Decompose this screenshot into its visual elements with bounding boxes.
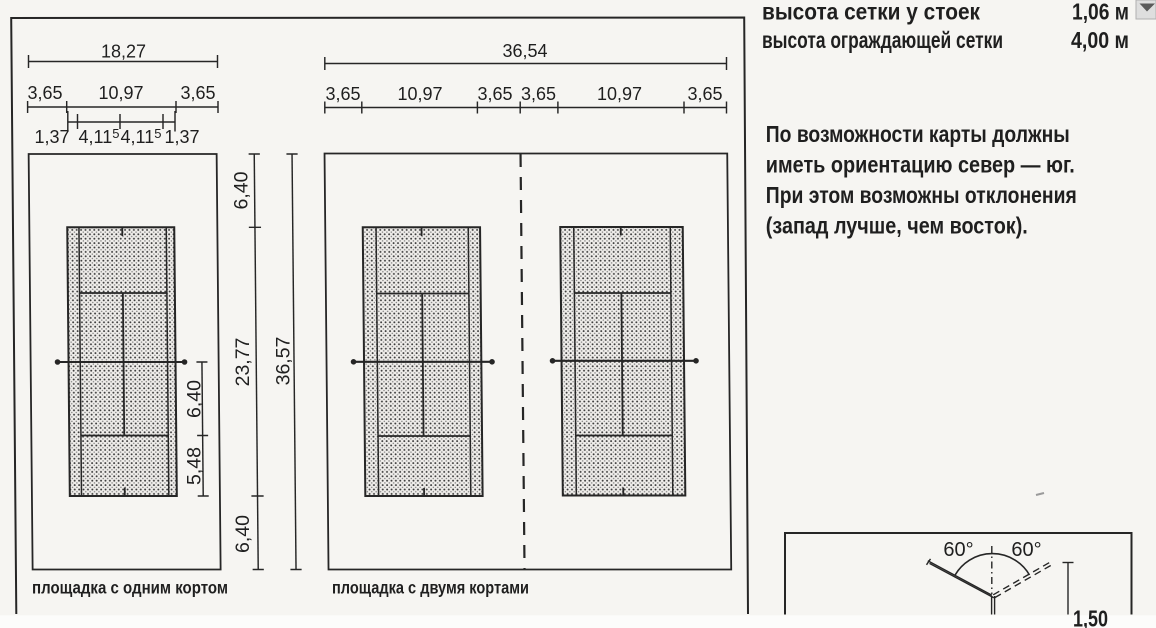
svg-text:высота сетки у стоек: высота сетки у стоек	[762, 0, 980, 25]
svg-text:18,27: 18,27	[101, 42, 146, 62]
svg-text:6,40: 6,40	[183, 380, 205, 418]
svg-text:6,40: 6,40	[231, 171, 253, 209]
svg-text:При этом возможны отклонения: При этом возможны отклонения	[766, 182, 1077, 208]
svg-text:По возможности карты должны: По возможности карты должны	[766, 121, 1070, 147]
svg-text:3,65: 3,65	[687, 84, 722, 104]
svg-text:23,77: 23,77	[232, 338, 254, 387]
svg-text:60°: 60°	[1011, 539, 1041, 561]
svg-text:10,97: 10,97	[98, 83, 143, 103]
svg-text:площадка с одним кортом: площадка с одним кортом	[32, 578, 228, 598]
svg-text:высота ограждающей сетки: высота ограждающей сетки	[762, 27, 1003, 53]
svg-text:10,97: 10,97	[397, 84, 442, 104]
svg-text:1,37: 1,37	[34, 127, 69, 147]
svg-text:иметь ориентацию север — юг.: иметь ориентацию север — юг.	[766, 152, 1075, 178]
svg-text:6,40: 6,40	[232, 515, 254, 553]
svg-text:1,50: 1,50	[1073, 606, 1108, 628]
svg-text:(запад лучше, чем восток).: (запад лучше, чем восток).	[766, 213, 1028, 239]
svg-text:3,65: 3,65	[27, 83, 62, 103]
svg-text:3,65: 3,65	[521, 84, 556, 104]
svg-text:3,65: 3,65	[180, 83, 215, 103]
svg-text:4,00 м: 4,00 м	[1071, 27, 1129, 53]
svg-text:10,97: 10,97	[597, 84, 642, 104]
svg-text:60°: 60°	[943, 539, 973, 561]
svg-text:5,48: 5,48	[184, 447, 206, 485]
svg-text:36,54: 36,54	[502, 41, 547, 61]
svg-text:36,57: 36,57	[273, 337, 295, 386]
svg-text:1,06 м: 1,06 м	[1072, 0, 1129, 25]
svg-text:3,65: 3,65	[477, 84, 512, 104]
svg-text:3,65: 3,65	[325, 84, 360, 104]
svg-text:площадка с двумя кортами: площадка с двумя кортами	[332, 578, 529, 598]
svg-text:1,37: 1,37	[164, 127, 199, 147]
